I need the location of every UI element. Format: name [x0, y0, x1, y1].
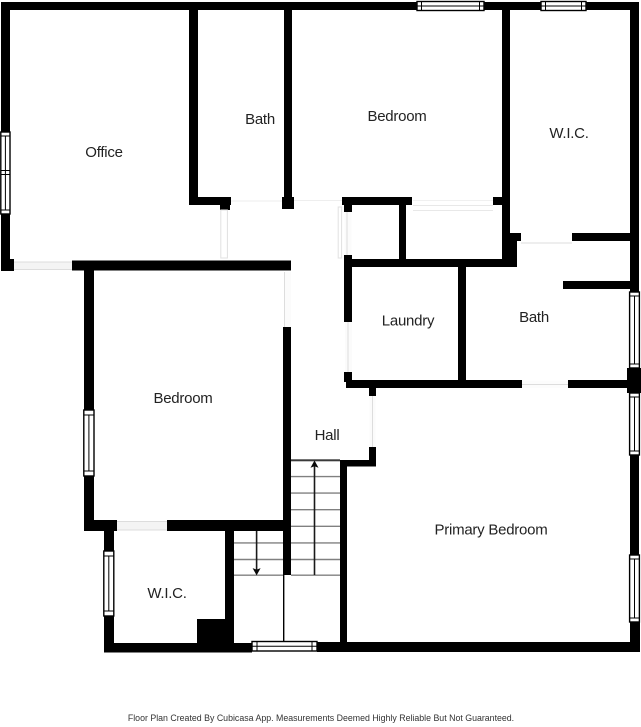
svg-text:Office: Office [85, 144, 122, 161]
svg-text:Laundry: Laundry [382, 313, 435, 330]
svg-text:Bedroom: Bedroom [367, 108, 426, 125]
svg-text:W.I.C.: W.I.C. [147, 585, 186, 602]
svg-text:Bath: Bath [245, 111, 275, 128]
svg-text:Bedroom: Bedroom [153, 390, 212, 407]
svg-text:Primary Bedroom: Primary Bedroom [435, 522, 548, 539]
svg-text:W.I.C.: W.I.C. [549, 125, 588, 142]
svg-text:Bath: Bath [519, 309, 549, 326]
svg-text:Hall: Hall [315, 427, 340, 444]
svg-text:Floor Plan Created By Cubicasa: Floor Plan Created By Cubicasa App. Meas… [128, 713, 514, 723]
